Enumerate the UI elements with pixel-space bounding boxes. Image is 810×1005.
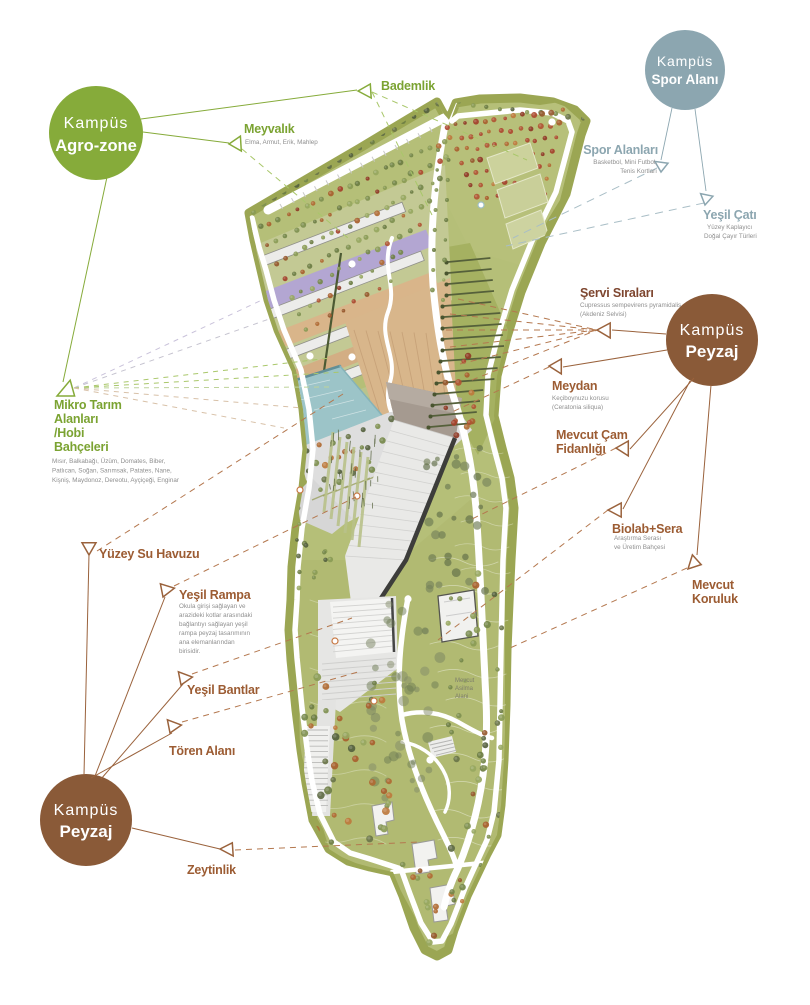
- svg-text:Meyvalık: Meyvalık: [244, 122, 295, 136]
- svg-text:rampa peyzaj tasarımının: rampa peyzaj tasarımının: [179, 630, 251, 637]
- svg-text:Asilma: Asilma: [455, 686, 474, 692]
- svg-text:Doğal Çayır Türleri: Doğal Çayır Türleri: [704, 233, 757, 240]
- svg-text:Basketbol, Mini Futbol,: Basketbol, Mini Futbol,: [593, 159, 657, 166]
- svg-text:Zeytinlik: Zeytinlik: [187, 863, 236, 877]
- svg-text:Biolab+Sera: Biolab+Sera: [612, 522, 684, 536]
- svg-text:Yeşil Çatı: Yeşil Çatı: [703, 208, 757, 222]
- svg-text:Okula girişi sağlayan ve: Okula girişi sağlayan ve: [179, 603, 246, 610]
- svg-text:Agro-zone: Agro-zone: [55, 137, 137, 155]
- svg-text:Kişniş, Maydonoz, Dereotu, Ayç: Kişniş, Maydonoz, Dereotu, Ayçiçeği, Eng…: [52, 477, 179, 484]
- svg-text:Yüzey Kaplayıcı: Yüzey Kaplayıcı: [707, 224, 752, 231]
- svg-text:Keçiboynuzu korusu: Keçiboynuzu korusu: [552, 395, 609, 402]
- svg-text:Yüzey Su Havuzu: Yüzey Su Havuzu: [99, 547, 200, 561]
- svg-text:Meydan: Meydan: [552, 379, 597, 393]
- svg-text:ana elemanlarından: ana elemanlarından: [179, 639, 235, 646]
- svg-text:Mevcut: Mevcut: [455, 678, 475, 684]
- svg-text:Kampüs: Kampüs: [54, 802, 119, 819]
- svg-text:Fidanlığı: Fidanlığı: [556, 442, 606, 456]
- svg-text:Mikro Tarım: Mikro Tarım: [54, 398, 122, 412]
- svg-text:Bademlik: Bademlik: [381, 79, 435, 93]
- svg-text:Tenis Kortları: Tenis Kortları: [620, 168, 657, 175]
- svg-text:ve Üretim Bahçesi: ve Üretim Bahçesi: [614, 543, 665, 551]
- svg-text:/Hobi: /Hobi: [54, 426, 84, 440]
- svg-text:Peyzaj: Peyzaj: [686, 342, 739, 361]
- svg-text:(Akdeniz Selvisi): (Akdeniz Selvisi): [580, 311, 627, 318]
- svg-text:Mısır, Balkabağı, Üzüm, Domate: Mısır, Balkabağı, Üzüm, Domates, Biber,: [52, 457, 166, 465]
- svg-text:Kampüs: Kampüs: [680, 322, 745, 339]
- svg-text:Şervi Sıraları: Şervi Sıraları: [580, 286, 654, 300]
- svg-text:Mevcut: Mevcut: [692, 578, 735, 592]
- svg-text:Spor Alanları: Spor Alanları: [583, 143, 658, 157]
- svg-text:Koruluk: Koruluk: [692, 592, 738, 606]
- svg-text:Kampüs: Kampüs: [64, 115, 129, 132]
- svg-text:Alani: Alani: [455, 694, 468, 700]
- svg-text:Bahçeleri: Bahçeleri: [54, 440, 108, 454]
- svg-text:Araştırma Serası: Araştırma Serası: [614, 535, 661, 542]
- svg-text:Alanları: Alanları: [54, 412, 98, 426]
- svg-text:Tören Alanı: Tören Alanı: [169, 744, 235, 758]
- svg-text:Elma, Armut, Erik, Mahlep: Elma, Armut, Erik, Mahlep: [245, 139, 318, 146]
- svg-text:Peyzaj: Peyzaj: [60, 822, 113, 841]
- svg-text:Yeşil Rampa: Yeşil Rampa: [179, 588, 252, 602]
- svg-text:(Ceratonia siliqua): (Ceratonia siliqua): [552, 404, 603, 411]
- svg-text:Mevcut Çam: Mevcut Çam: [556, 428, 628, 442]
- svg-text:Kampüs: Kampüs: [657, 53, 713, 69]
- svg-text:birisidir.: birisidir.: [179, 648, 201, 655]
- svg-text:Spor Alanı: Spor Alanı: [651, 72, 718, 87]
- svg-text:arazideki kotlar arasındaki: arazideki kotlar arasındaki: [179, 612, 252, 619]
- svg-text:Patlıcan, Soğan, Sarımsak, Pat: Patlıcan, Soğan, Sarımsak, Patates, Nane…: [52, 468, 172, 475]
- svg-text:bağlantıyı sağlayan yeşil: bağlantıyı sağlayan yeşil: [179, 621, 248, 628]
- svg-text:Cupressus sempevirens pyramida: Cupressus sempevirens pyramidalis: [580, 302, 681, 309]
- svg-text:Yeşil Bantlar: Yeşil Bantlar: [187, 683, 260, 697]
